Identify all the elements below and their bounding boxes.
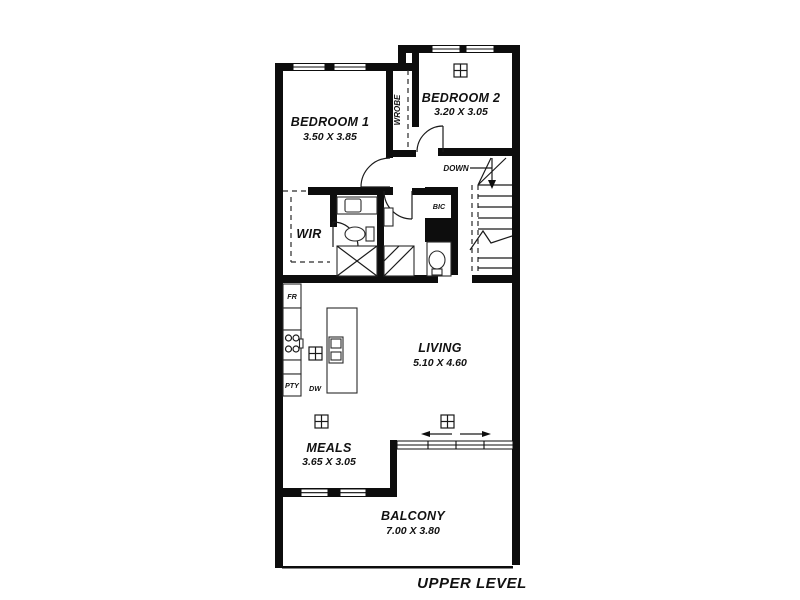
shower-icon <box>337 246 377 276</box>
cooktop-cell <box>283 330 301 360</box>
balcony-dims: 7.00 X 3.80 <box>386 525 440 537</box>
bench-cabinet <box>283 308 301 330</box>
wall-meals-bottom <box>275 488 397 497</box>
window-icon <box>340 489 366 497</box>
wall-bic-right <box>451 187 458 275</box>
window-icon <box>301 489 328 497</box>
bedroom1-dims: 3.50 X 3.85 <box>303 131 357 143</box>
toilet-icon <box>345 227 374 241</box>
window-icon <box>293 64 325 71</box>
wall-living-stub <box>390 440 397 497</box>
window-icon <box>432 46 460 53</box>
balcony-edge-line <box>282 566 513 569</box>
bench-cabinet <box>283 360 301 374</box>
bedroom1-door-swing <box>361 158 390 187</box>
wall-bedroom1-bottom <box>308 187 393 195</box>
slide-left-arrow-icon <box>421 431 452 437</box>
meals-dims: 3.65 X 3.05 <box>302 456 356 468</box>
bedroom2-dims: 3.20 X 3.05 <box>434 106 488 118</box>
balcony-label: BALCONY <box>381 509 446 523</box>
down-label: DOWN <box>443 164 469 173</box>
ceiling-light-icon <box>309 347 322 360</box>
window-icon <box>466 46 494 53</box>
floor-plan-page: BEDROOM 1 3.50 X 3.85 BEDROOM 2 3.20 X 3… <box>0 0 800 600</box>
wrobe-label: WROBE <box>393 94 402 125</box>
sink-icon <box>329 337 343 363</box>
wall-right-outer <box>512 45 520 565</box>
window-icon <box>334 64 366 71</box>
wall-bedroom1-right <box>386 70 393 158</box>
slide-right-arrow-icon <box>460 431 491 437</box>
wall-bedroom2-left <box>412 53 419 127</box>
floor-plan-drawing: BEDROOM 1 3.50 X 3.85 BEDROOM 2 3.20 X 3… <box>0 0 800 600</box>
sliding-door <box>397 431 513 449</box>
ceiling-light-icon <box>454 64 467 77</box>
level-title: UPPER LEVEL <box>417 575 527 592</box>
wall-stairs-bottom <box>472 275 520 283</box>
wir-label: WIR <box>296 227 321 241</box>
living-dims: 5.10 X 4.60 <box>413 357 467 369</box>
bedroom1-label: BEDROOM 1 <box>291 115 369 129</box>
staircase <box>470 158 512 274</box>
wall-bedroom2-bottom <box>438 148 520 156</box>
basin-icon <box>345 199 361 212</box>
pantry-label: PTY <box>285 381 300 390</box>
corner-shower-icon <box>384 246 414 276</box>
ceiling-light-icon <box>441 415 454 428</box>
fridge-label: FR <box>287 292 297 301</box>
ceiling-light-icon <box>315 415 328 428</box>
wall-bathroom-divider <box>377 195 384 275</box>
dishwasher-label: DW <box>309 384 322 393</box>
bic-label: BIC <box>433 202 446 211</box>
meals-label: MEALS <box>306 441 352 455</box>
wall-wrobe-bottom <box>386 150 416 157</box>
living-label: LIVING <box>418 341 461 355</box>
bedroom2-label: BEDROOM 2 <box>422 91 500 105</box>
basin-icon <box>384 208 393 226</box>
stair-break-line <box>470 231 512 250</box>
